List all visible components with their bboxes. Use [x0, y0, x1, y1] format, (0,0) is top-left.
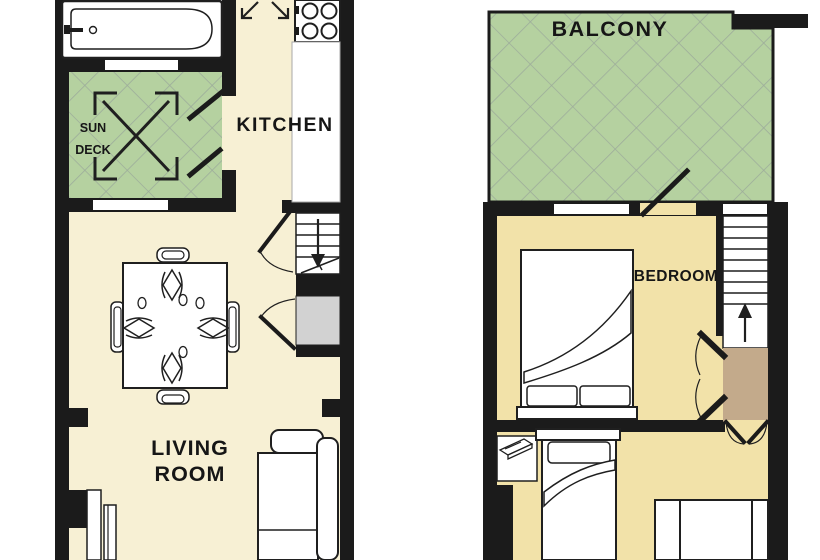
lower-floor-plan: SUN DECK KITCHEN	[55, 0, 354, 560]
upper-floor-plan: BALCONY	[483, 12, 808, 560]
living-room-label-line1: LIVING	[151, 436, 229, 460]
window	[93, 200, 168, 210]
pillow	[527, 386, 577, 406]
kitchen-label: KITCHEN	[236, 114, 333, 136]
stove-hob-icon	[295, 0, 340, 42]
sun-deck-label-line2: DECK	[75, 143, 110, 157]
dining-table	[123, 263, 227, 388]
window	[554, 204, 629, 214]
window	[105, 60, 178, 70]
stairs-down	[296, 213, 340, 274]
bath-tap-icon	[64, 25, 70, 34]
pillow	[580, 386, 630, 406]
dining-table-set	[111, 248, 239, 404]
floor-plan-svg: SUN DECK KITCHEN	[0, 0, 820, 560]
deck-doorway-floor	[222, 96, 236, 170]
bathtub	[62, 1, 222, 58]
window	[723, 204, 767, 214]
living-room-label-line2: ROOM	[155, 462, 226, 486]
headboard	[517, 407, 637, 419]
floor-plan-image: SUN DECK KITCHEN	[0, 0, 820, 560]
double-bed	[517, 250, 637, 419]
balcony-label: BALCONY	[552, 17, 669, 41]
desk	[497, 436, 537, 481]
sun-deck	[69, 72, 222, 198]
headboard	[536, 429, 620, 440]
bedroom-label: BEDROOM	[634, 268, 718, 285]
single-bed	[536, 429, 620, 560]
balcony-notch-wall	[733, 14, 808, 28]
pillow	[548, 442, 610, 463]
hall-floor	[236, 0, 294, 215]
landing	[723, 348, 768, 422]
stairs-up	[716, 216, 768, 348]
storage-closet	[296, 296, 340, 345]
dining-chair	[157, 390, 189, 404]
second-bed	[655, 500, 768, 560]
sun-deck-label-line1: SUN	[80, 121, 106, 135]
